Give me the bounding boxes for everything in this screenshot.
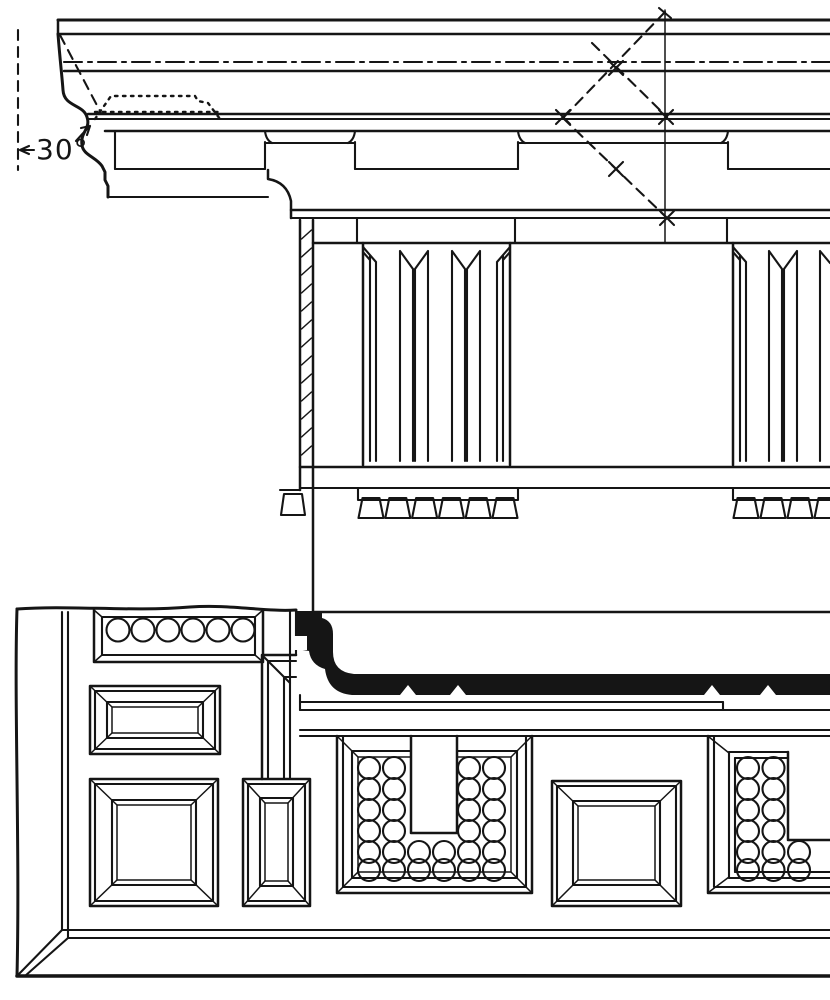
hatch-tick <box>302 248 312 257</box>
gutta-circle <box>232 619 255 642</box>
section-hatching <box>302 230 312 455</box>
x-mark-icon <box>659 110 673 124</box>
gutta-circle <box>132 619 155 642</box>
coffer-wide-top-left <box>90 686 220 754</box>
hatch-tick <box>302 320 312 329</box>
strip-gutta-circles <box>107 619 255 642</box>
miter-joint <box>552 781 681 906</box>
regula-left <box>358 488 518 500</box>
gutta-circle <box>182 619 205 642</box>
gutta-circle <box>383 799 405 821</box>
mutule-blocks <box>115 131 830 169</box>
gutta-circle <box>458 799 480 821</box>
miter-joint <box>17 930 62 976</box>
gutta-circle <box>483 757 505 779</box>
gutta-circle <box>383 778 405 800</box>
angle-label: 30° <box>36 133 89 166</box>
gutta-circle <box>358 778 380 800</box>
construction-diagonals <box>556 8 674 243</box>
hatch-tick <box>302 374 312 383</box>
hatch-tick <box>302 230 312 239</box>
gutta-circle <box>483 778 505 800</box>
gutta-circle <box>483 820 505 842</box>
gutta-circle <box>737 820 759 842</box>
hatch-tick <box>302 302 312 311</box>
gutta-circle <box>358 820 380 842</box>
section-poche <box>292 611 830 695</box>
gutta-circle <box>157 619 180 642</box>
mutule-dotted-outline <box>95 96 220 119</box>
x-mark-icon <box>609 162 623 176</box>
coffer-square-left <box>90 779 218 906</box>
x-mark-icon <box>556 110 570 124</box>
gutta-circle <box>737 757 759 779</box>
gutta-circle <box>458 757 480 779</box>
gutta-circle <box>483 799 505 821</box>
gutta-circle <box>458 820 480 842</box>
cavetto-profile <box>268 170 291 218</box>
arrow-left-icon <box>20 146 34 154</box>
guttae-strip-panel <box>94 610 263 662</box>
slope-dashed-line <box>60 35 101 113</box>
gutta-circle <box>383 757 405 779</box>
hatch-tick <box>302 446 312 455</box>
gutta-circle <box>207 619 230 642</box>
gutta-section-profile <box>281 494 305 515</box>
hatch-tick <box>302 410 312 419</box>
gutta-circle <box>763 799 785 821</box>
triglyph-left <box>363 243 510 465</box>
mutule-panel-left <box>337 736 532 893</box>
hatch-tick <box>302 266 312 275</box>
triglyph-notch-mask <box>412 737 456 832</box>
miter-joint <box>709 737 729 892</box>
gutta-circle <box>358 757 380 779</box>
gutta-circle <box>737 778 759 800</box>
cymatium-profile <box>58 34 268 197</box>
mutule-panel-right <box>708 736 830 893</box>
hatch-tick <box>302 392 312 401</box>
soffit-plan <box>16 606 830 976</box>
gutta-circle <box>763 757 785 779</box>
architectural-plate: 30° <box>0 0 830 1000</box>
soffit-edge-band <box>262 610 296 779</box>
hatch-tick <box>302 284 312 293</box>
hatch-tick <box>302 338 312 347</box>
gutta-circle <box>737 799 759 821</box>
coffer-square-center <box>552 781 681 906</box>
triglyph-right <box>733 243 830 465</box>
gutta-circle <box>358 799 380 821</box>
mutule-gutta-circles <box>737 757 810 881</box>
plan-bottom-edge <box>17 975 830 976</box>
gutta-circle <box>763 820 785 842</box>
entablature-section-elevation: 30° <box>18 8 830 612</box>
gutta-circle <box>763 778 785 800</box>
miter-joint <box>90 779 218 906</box>
hatch-tick <box>302 428 312 437</box>
miter-joint <box>90 686 220 754</box>
gutta-circle <box>383 820 405 842</box>
bed-mould <box>268 170 830 243</box>
soffit-step-lines <box>300 695 830 736</box>
poche-cut-band <box>296 611 830 695</box>
gutta-circle <box>458 778 480 800</box>
hatch-tick <box>302 356 312 365</box>
coffer-narrow <box>243 779 310 906</box>
poche-step-notch <box>292 636 307 650</box>
cornice-lines <box>58 20 830 131</box>
gutta-circle <box>107 619 130 642</box>
entablature-drawing: 30° <box>0 0 830 1000</box>
plan-top-edge <box>17 606 296 610</box>
taenia-regula-guttae <box>280 467 830 518</box>
miter-joint <box>25 938 68 976</box>
miter-joint <box>262 655 290 683</box>
frieze-section-cut <box>300 220 313 612</box>
triglyph-notch <box>788 752 830 840</box>
plan-left-edge <box>16 609 18 976</box>
